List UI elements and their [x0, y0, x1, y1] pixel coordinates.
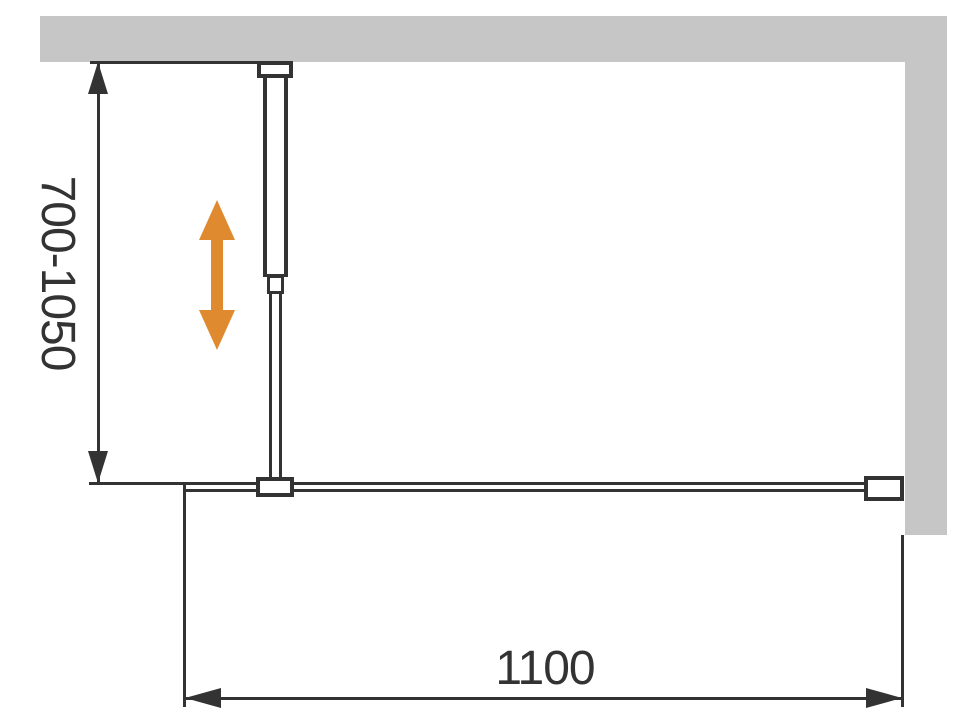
- support-bar-glass-clamp: [256, 477, 294, 497]
- right-wall: [905, 16, 947, 535]
- support-bar-collar-joint: [267, 275, 284, 294]
- height-dim-label: 700-1050: [33, 161, 81, 385]
- vertical-double-arrow-icon: [199, 200, 235, 350]
- adjust-arrow-down-head: [199, 310, 235, 350]
- width-dim-arrow-right-icon: [866, 688, 902, 708]
- width-dim-line: [185, 697, 902, 700]
- glass-wall-profile: [864, 476, 904, 501]
- height-dim-arrow-up-icon: [88, 62, 108, 94]
- width-dim-right-extension-line: [901, 535, 904, 707]
- support-bar-inner-tube: [269, 294, 282, 479]
- width-dim-arrow-left-icon: [185, 688, 221, 708]
- adjust-arrow-shaft: [211, 238, 223, 312]
- support-bar-outer-tube: [263, 78, 288, 277]
- top-wall: [40, 16, 947, 62]
- height-dim-arrow-down-icon: [88, 451, 108, 483]
- height-dim-top-extension-line: [90, 61, 258, 64]
- glass-panel-top-edge: [89, 482, 865, 485]
- width-dim-label: 1100: [485, 645, 605, 693]
- height-dim-line: [97, 62, 100, 483]
- width-dim-left-extension-line: [183, 489, 186, 707]
- adjust-arrow-up-head: [199, 200, 235, 240]
- support-bar-wall-bracket: [257, 61, 293, 78]
